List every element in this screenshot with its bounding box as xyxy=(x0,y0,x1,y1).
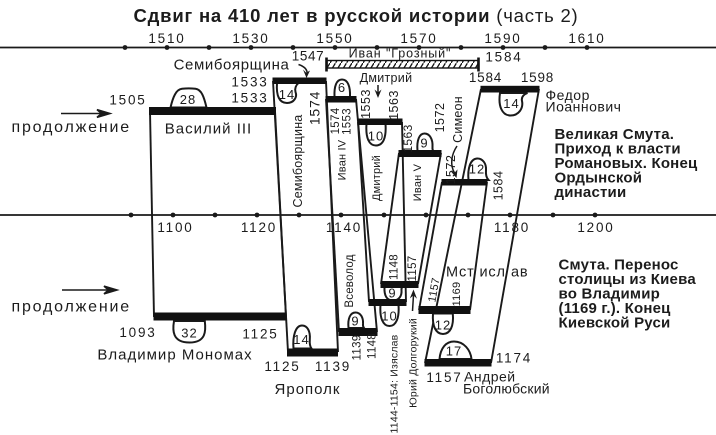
svg-text:12: 12 xyxy=(469,162,485,177)
svg-text:Сдвиг на 410 лет в русской ист: Сдвиг на 410 лет в русской истории (част… xyxy=(133,5,578,26)
svg-text:32: 32 xyxy=(181,326,197,341)
svg-text:1174: 1174 xyxy=(496,351,532,366)
svg-text:династии: династии xyxy=(555,184,627,201)
svg-text:Иван IV: Иван IV xyxy=(337,139,349,180)
svg-text:1533: 1533 xyxy=(231,75,268,90)
svg-text:1584: 1584 xyxy=(485,50,522,65)
svg-text:1563: 1563 xyxy=(401,124,415,152)
svg-text:1125: 1125 xyxy=(242,327,278,342)
svg-text:14: 14 xyxy=(503,96,519,111)
svg-text:Семибоярщина: Семибоярщина xyxy=(291,115,305,208)
svg-text:Юрий Долгорукий: Юрий Долгорукий xyxy=(408,318,420,408)
svg-text:10: 10 xyxy=(381,309,397,324)
svg-text:1510: 1510 xyxy=(148,31,185,46)
svg-text:1550: 1550 xyxy=(316,31,353,46)
svg-text:9: 9 xyxy=(351,314,359,329)
svg-text:1584: 1584 xyxy=(469,70,502,85)
svg-text:Иван V: Иван V xyxy=(412,163,424,201)
svg-text:Ярополк: Ярополк xyxy=(275,381,341,398)
svg-text:1553: 1553 xyxy=(342,108,354,135)
svg-text:1530: 1530 xyxy=(232,31,269,46)
svg-text:1157: 1157 xyxy=(426,370,462,385)
svg-text:1139: 1139 xyxy=(315,359,351,374)
svg-text:14: 14 xyxy=(293,332,309,347)
svg-text:17: 17 xyxy=(446,344,462,359)
svg-text:1148: 1148 xyxy=(367,333,379,359)
svg-text:продолжение: продолжение xyxy=(12,299,131,316)
svg-text:Дмитрий: Дмитрий xyxy=(371,155,383,201)
svg-text:Боголюбский: Боголюбский xyxy=(463,381,550,397)
svg-text:1572: 1572 xyxy=(433,103,447,133)
svg-text:1157: 1157 xyxy=(407,256,419,282)
svg-text:1584: 1584 xyxy=(492,171,506,201)
svg-text:Иван "Грозный": Иван "Грозный" xyxy=(349,47,452,61)
svg-text:ав: ав xyxy=(511,265,528,281)
svg-text:1570: 1570 xyxy=(400,31,437,46)
svg-text:1574: 1574 xyxy=(330,107,342,134)
svg-text:1125: 1125 xyxy=(264,359,300,374)
svg-text:1139: 1139 xyxy=(352,335,364,361)
svg-text:1148: 1148 xyxy=(389,254,401,280)
svg-text:Семибоярщина: Семибоярщина xyxy=(174,57,290,74)
svg-text:1093: 1093 xyxy=(119,325,156,340)
svg-text:Симеон: Симеон xyxy=(451,96,465,143)
svg-text:Киевской Руси: Киевской Руси xyxy=(559,315,671,332)
svg-text:1590: 1590 xyxy=(484,31,521,46)
svg-text:1533: 1533 xyxy=(231,91,268,106)
svg-text:Дмитрий: Дмитрий xyxy=(360,71,413,85)
svg-text:Василий III: Василий III xyxy=(165,121,252,138)
svg-text:1200: 1200 xyxy=(577,220,614,235)
svg-text:1547: 1547 xyxy=(292,49,324,64)
svg-text:1169: 1169 xyxy=(451,282,463,307)
svg-text:1563: 1563 xyxy=(387,90,401,120)
svg-text:продолжение: продолжение xyxy=(12,119,131,136)
svg-text:14: 14 xyxy=(279,87,295,102)
svg-text:1100: 1100 xyxy=(157,220,193,235)
svg-text:12: 12 xyxy=(435,318,451,333)
svg-text:1574: 1574 xyxy=(307,91,323,125)
svg-text:1553: 1553 xyxy=(359,89,373,119)
svg-text:1180: 1180 xyxy=(494,220,530,235)
svg-text:исл: исл xyxy=(480,265,506,281)
svg-text:Мст: Мст xyxy=(446,265,475,281)
svg-text:1505: 1505 xyxy=(109,93,146,108)
svg-text:1120: 1120 xyxy=(241,220,277,235)
svg-text:1144-1154: Изяслав: 1144-1154: Изяслав xyxy=(389,334,401,433)
svg-text:Иоаннович: Иоаннович xyxy=(546,99,622,115)
svg-text:6: 6 xyxy=(338,80,346,95)
svg-text:Владимир Мономах: Владимир Мономах xyxy=(97,347,252,364)
svg-text:10: 10 xyxy=(368,129,384,144)
svg-text:1598: 1598 xyxy=(521,70,554,85)
svg-text:28: 28 xyxy=(180,92,196,107)
svg-text:9: 9 xyxy=(420,136,428,151)
svg-text:1610: 1610 xyxy=(568,31,605,46)
svg-text:Всеволод: Всеволод xyxy=(344,254,356,307)
